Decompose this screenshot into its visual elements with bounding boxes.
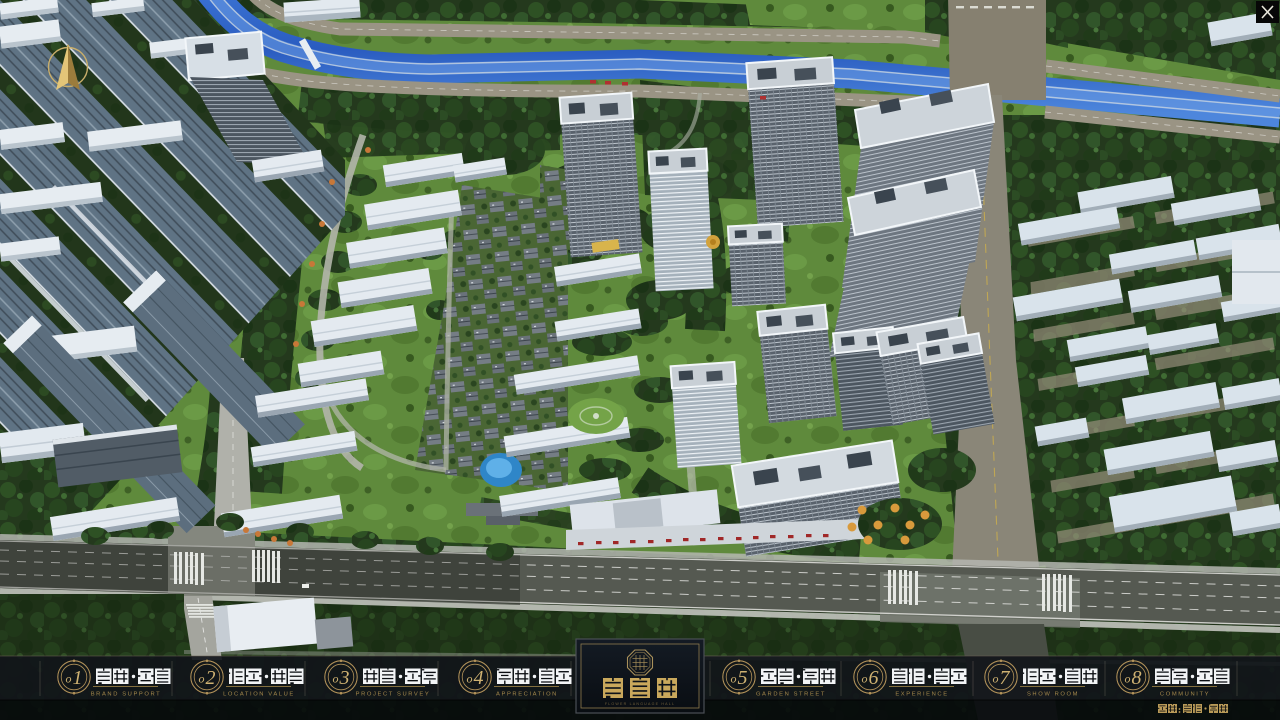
svg-text:BRAND SUPPORT: BRAND SUPPORT [91, 692, 162, 698]
svg-text:o: o [467, 672, 473, 686]
svg-text:LOCATION VALUE: LOCATION VALUE [223, 692, 295, 698]
svg-text:FLOWER LANGUAGE HALL: FLOWER LANGUAGE HALL [605, 702, 675, 706]
svg-text:2: 2 [206, 667, 216, 689]
svg-text:5: 5 [738, 667, 748, 689]
svg-text:7: 7 [1000, 667, 1011, 689]
svg-text:o: o [731, 672, 737, 686]
svg-text:APPRECIATION: APPRECIATION [496, 692, 558, 698]
svg-text:EXPERIENCE: EXPERIENCE [895, 692, 948, 698]
svg-text:GARDEN STREET: GARDEN STREET [756, 692, 826, 698]
svg-text:o: o [993, 672, 999, 686]
svg-text:o: o [199, 672, 205, 686]
svg-text:SHOW ROOM: SHOW ROOM [1027, 692, 1079, 698]
svg-text:4: 4 [474, 667, 484, 689]
svg-text:o: o [862, 672, 868, 686]
svg-text:3: 3 [339, 667, 350, 689]
svg-text:o: o [1125, 672, 1131, 686]
svg-text:o: o [333, 672, 339, 686]
svg-text:1: 1 [73, 667, 83, 689]
svg-text:o: o [66, 672, 72, 686]
svg-text:8: 8 [1132, 667, 1142, 689]
svg-text:COMMUNITY: COMMUNITY [1160, 692, 1210, 698]
svg-text:PROJECT SURVEY: PROJECT SURVEY [356, 692, 431, 698]
svg-text:6: 6 [869, 667, 879, 689]
